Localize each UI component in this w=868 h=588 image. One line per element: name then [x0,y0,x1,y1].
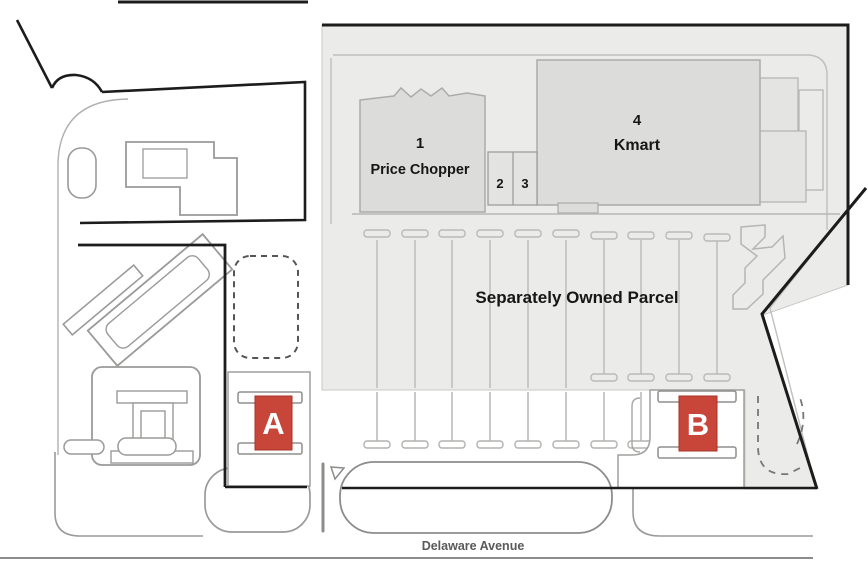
pad-b-letter: B [687,407,709,442]
landscape-island-oval [68,148,96,198]
kmart-label: Kmart [614,137,661,154]
site-plan-page: 1 Price Chopper 2 3 4 Kmart Separately O… [0,0,868,588]
pad-a-letter: A [262,406,284,441]
separately-owned-parcel-label: Separately Owned Parcel [475,288,678,307]
kmart-number: 4 [633,112,642,129]
flag-marker [331,467,344,479]
pad-site-dashed [234,256,298,358]
unit-2-number: 2 [496,176,503,191]
street-delaware-avenue: Delaware Avenue [422,539,525,553]
site-plan-drawing: 1 Price Chopper 2 3 4 Kmart Separately O… [0,0,868,588]
building-kmart-notch [558,203,598,213]
parking-islands [64,438,176,455]
price-chopper-number: 1 [416,135,424,152]
unit-3-number: 3 [521,176,528,191]
building-units-2-3 [488,152,537,205]
parking-lanes-lower [364,392,654,448]
price-chopper-label: Price Chopper [370,162,469,178]
median-center [340,462,612,533]
building-kmart [537,60,760,205]
